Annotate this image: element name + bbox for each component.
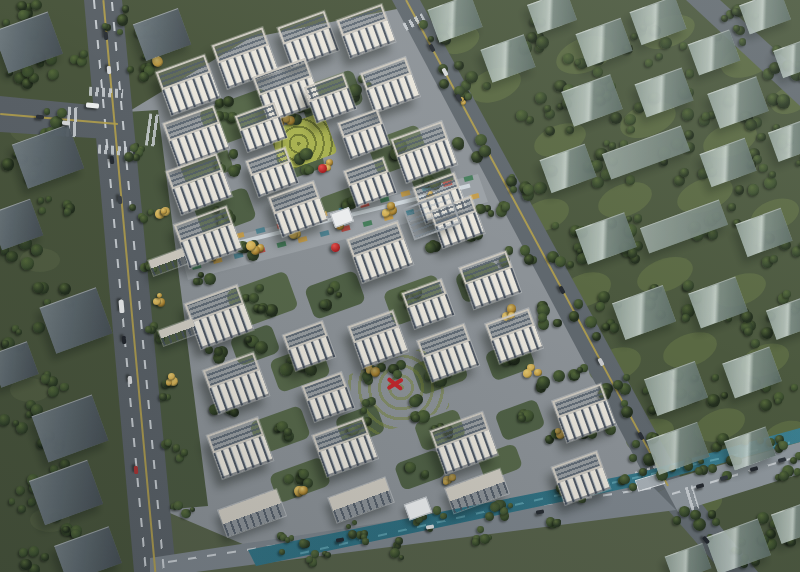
tree [173, 444, 181, 452]
tree [390, 548, 400, 558]
tree [64, 208, 71, 215]
tree [48, 69, 58, 79]
tree [660, 37, 672, 49]
tree [708, 510, 716, 518]
tree [553, 519, 561, 527]
tree [545, 126, 555, 136]
tree [792, 246, 800, 256]
tree [680, 168, 689, 177]
tree [395, 537, 403, 545]
tree [538, 313, 547, 322]
tree [129, 204, 136, 211]
tree [627, 126, 634, 133]
tree [465, 93, 472, 100]
tree [399, 555, 404, 560]
tree [449, 474, 456, 481]
tree [682, 108, 695, 121]
tree [2, 158, 15, 171]
tree [256, 284, 265, 293]
aerial-render [0, 0, 800, 572]
tree [536, 36, 549, 49]
tree [300, 148, 313, 161]
tree [751, 339, 760, 348]
tree [280, 363, 293, 376]
tree [760, 399, 772, 411]
car [110, 156, 115, 164]
tree [440, 513, 447, 520]
tree [569, 311, 580, 322]
tree [535, 92, 547, 104]
tree [362, 538, 369, 545]
tree [174, 501, 183, 510]
tree [16, 486, 25, 495]
tree [592, 177, 603, 188]
tree [728, 203, 736, 211]
crosswalk [89, 86, 124, 97]
tree [613, 380, 623, 390]
tree [284, 428, 292, 436]
tree [157, 293, 162, 298]
tree [621, 406, 633, 418]
tree [634, 214, 643, 223]
car [107, 66, 112, 74]
tree [255, 341, 268, 354]
tree [733, 25, 740, 32]
tree [41, 553, 48, 560]
tree [553, 319, 561, 327]
tree [679, 506, 690, 517]
tree [707, 394, 720, 407]
tree [422, 470, 429, 477]
tree [757, 133, 766, 142]
tree [544, 105, 551, 112]
tree [346, 524, 351, 529]
tree [382, 209, 390, 217]
car [134, 466, 139, 474]
tree [593, 67, 602, 76]
tree [285, 537, 290, 542]
tree [732, 8, 739, 15]
tree [18, 505, 26, 513]
tree [0, 414, 10, 425]
tree [686, 69, 695, 78]
tree [124, 152, 134, 162]
tree [20, 559, 31, 570]
tree [475, 134, 487, 146]
tree [592, 332, 601, 341]
car [122, 336, 127, 344]
tree [563, 53, 574, 64]
tree [122, 5, 129, 12]
tree [181, 449, 188, 456]
tree [327, 287, 335, 295]
tree [284, 474, 294, 484]
tree [472, 538, 480, 546]
tree [585, 316, 597, 328]
tree [791, 384, 798, 391]
tree [443, 479, 449, 485]
tree [485, 512, 494, 521]
tree [102, 23, 108, 29]
tree [371, 367, 380, 376]
car [36, 115, 44, 120]
tree [488, 210, 494, 216]
tree [775, 398, 782, 405]
tree [33, 282, 44, 293]
tree [299, 469, 309, 479]
tree [153, 57, 163, 67]
car [62, 121, 70, 126]
tree [695, 467, 703, 475]
tree [60, 383, 68, 391]
tree [702, 112, 710, 120]
red-sphere-sculpture [331, 243, 340, 252]
tree [629, 483, 637, 491]
bus [85, 102, 98, 108]
tree [477, 526, 484, 533]
tree [680, 42, 687, 49]
tree [48, 386, 58, 396]
tree [534, 182, 546, 194]
tree [534, 369, 542, 377]
tree [249, 293, 259, 303]
tree [794, 468, 800, 476]
tree [518, 415, 525, 422]
tree [796, 160, 800, 166]
tree [712, 518, 720, 526]
tree [139, 72, 149, 82]
tree [721, 15, 728, 22]
tree [387, 202, 395, 210]
tree [13, 420, 19, 426]
tree [502, 202, 511, 211]
tree [739, 38, 747, 46]
tree [117, 14, 128, 25]
tree [683, 280, 694, 291]
tree [625, 114, 635, 124]
tree [735, 185, 744, 194]
tree [516, 110, 527, 121]
red-sphere-sculpture [318, 164, 327, 173]
tree [779, 471, 789, 481]
tree [214, 347, 223, 356]
tree [639, 468, 647, 476]
bus [118, 299, 124, 312]
tree [537, 376, 550, 389]
tree [361, 407, 368, 414]
tree [721, 392, 728, 399]
tree [229, 149, 238, 158]
tree [524, 254, 534, 264]
tree [779, 441, 788, 450]
tree [325, 552, 331, 558]
tree [31, 244, 43, 256]
tree [230, 408, 239, 417]
tree [508, 503, 513, 508]
tree [320, 300, 328, 308]
tree [33, 322, 45, 334]
tree [305, 166, 314, 175]
tree [299, 486, 308, 495]
tree [708, 464, 717, 473]
tree [490, 502, 500, 512]
tree [412, 414, 420, 422]
tree [168, 373, 175, 380]
tree [117, 29, 123, 35]
tree [690, 510, 700, 520]
tree [574, 299, 583, 308]
tree [452, 137, 464, 149]
tree [761, 327, 773, 339]
tree [21, 257, 34, 270]
car [128, 376, 133, 384]
tree [44, 108, 51, 115]
tree [520, 245, 531, 256]
tree [523, 184, 534, 195]
tree [439, 79, 449, 89]
tree [299, 539, 308, 548]
tree [555, 256, 566, 267]
tree [748, 184, 760, 196]
tree [433, 506, 441, 514]
tree [39, 207, 46, 214]
tree [596, 302, 605, 311]
tree [712, 374, 719, 381]
tree [19, 548, 28, 557]
tree [41, 374, 50, 383]
tree [759, 164, 767, 172]
car [118, 196, 123, 204]
tree [790, 457, 797, 464]
tree [166, 379, 172, 385]
tree [480, 534, 490, 544]
tree [38, 197, 44, 203]
tree [57, 108, 67, 118]
car [104, 32, 109, 40]
tree [193, 278, 200, 285]
tree [2, 340, 9, 347]
